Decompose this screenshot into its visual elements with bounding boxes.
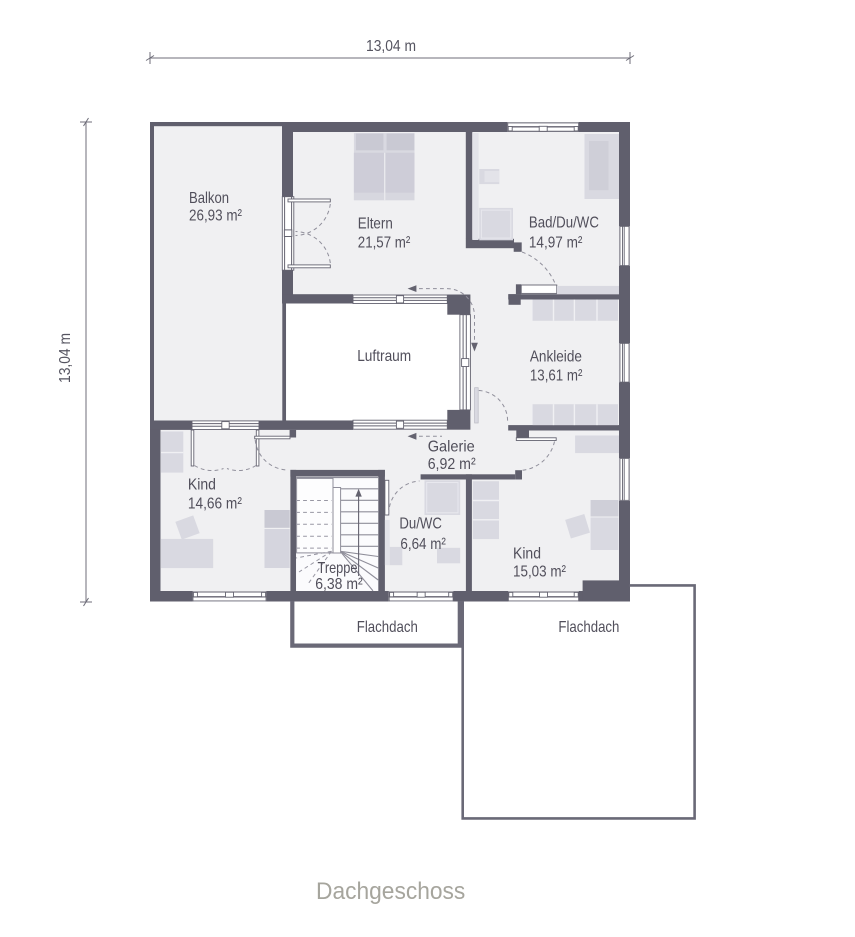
svg-text:13,04 m: 13,04 m [57,333,74,383]
svg-text:Flachdach: Flachdach [357,619,418,636]
svg-text:14,97 m²: 14,97 m² [529,235,583,252]
svg-text:6,92 m²: 6,92 m² [428,456,477,473]
svg-text:Treppe: Treppe [318,560,358,577]
svg-text:Eltern: Eltern [358,216,393,233]
svg-text:13,04 m: 13,04 m [366,38,416,55]
svg-text:14,66 m²: 14,66 m² [188,496,243,513]
svg-text:Galerie: Galerie [428,438,475,455]
svg-text:6,64 m²: 6,64 m² [400,536,446,553]
svg-text:Du/WC: Du/WC [399,516,442,533]
svg-text:Flachdach: Flachdach [558,619,619,636]
svg-text:Luftraum: Luftraum [357,348,411,365]
svg-text:Kind: Kind [188,476,216,493]
svg-text:Balkon: Balkon [189,190,229,207]
svg-text:Ankleide: Ankleide [530,349,582,366]
svg-text:26,93 m²: 26,93 m² [189,208,243,225]
svg-text:Dachgeschoss: Dachgeschoss [316,878,465,905]
svg-text:Kind: Kind [513,546,541,563]
svg-text:6,38 m²: 6,38 m² [315,576,363,593]
svg-text:21,57 m²: 21,57 m² [358,234,411,251]
svg-text:Bad/Du/WC: Bad/Du/WC [529,215,599,232]
svg-text:13,61 m²: 13,61 m² [530,368,583,385]
svg-text:15,03 m²: 15,03 m² [513,564,567,581]
